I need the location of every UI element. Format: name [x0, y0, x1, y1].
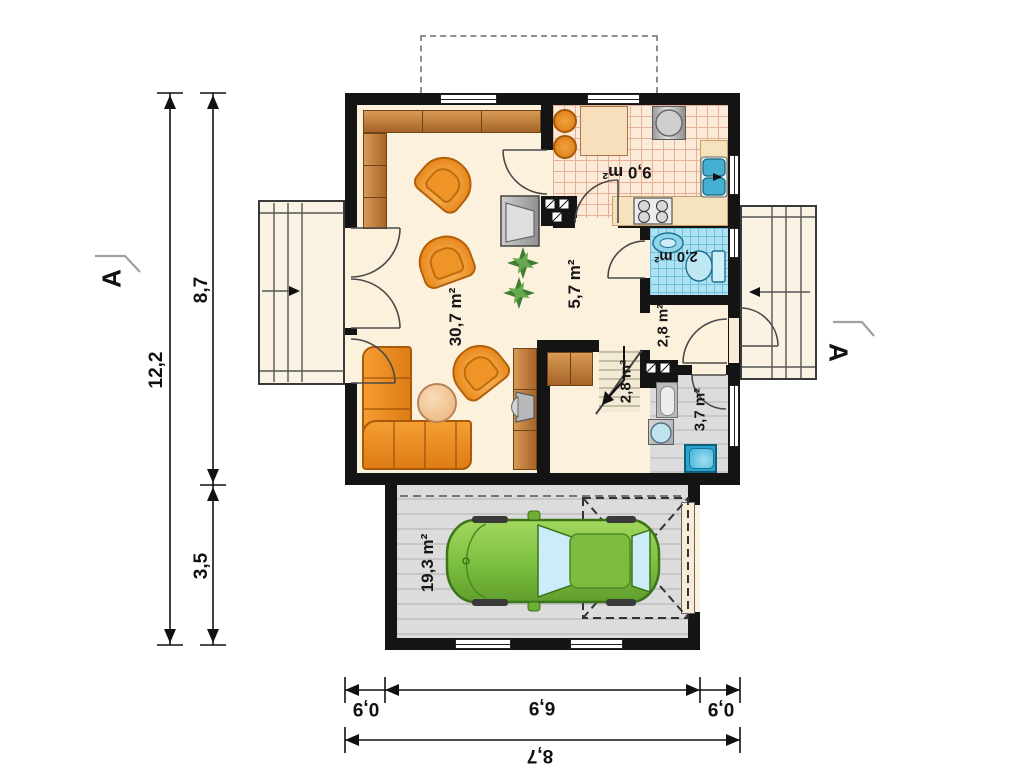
- dim-bottom-total: 8,7: [485, 744, 595, 766]
- entrance-door-opening: [729, 318, 739, 363]
- shelf-unit-top: [363, 110, 541, 133]
- garage-wall-bottom: [385, 638, 700, 650]
- label-kitchen-area: 9,0 m²: [572, 162, 682, 182]
- garage-wall-right-upper: [688, 473, 700, 505]
- garage-floor: [397, 485, 688, 638]
- window-garage-1: [455, 639, 511, 649]
- porch-right: [740, 205, 817, 380]
- wall-hall-kitchen-left: [553, 218, 575, 228]
- window-bath-right: [729, 385, 739, 447]
- floor-plan-canvas: 30,7 m² 5,7 m² 9,0 m² 2,0 m² 2,8 m² 2,8 …: [0, 0, 1024, 768]
- kitchen-stool-1: [553, 109, 577, 133]
- washing-machine: [648, 419, 674, 445]
- label-wc-area: 2,0 m²: [621, 248, 731, 265]
- terrace-left: [258, 200, 345, 385]
- label-bathroom-area: 3,7 m²: [692, 355, 709, 465]
- kitchen-door-opening: [541, 150, 553, 196]
- window-top-living: [440, 94, 497, 104]
- dim-bottom-right: 0,9: [666, 697, 776, 719]
- dim-bottom-left: 0,9: [311, 697, 421, 719]
- wall-bath-right: [726, 365, 740, 375]
- terrace-door-opening-2: [345, 335, 357, 383]
- section-marker-left: A: [97, 224, 128, 334]
- corner-sofa-horizontal: [362, 420, 472, 470]
- wall-vestibule-upper: [640, 305, 650, 313]
- dim-left-lower: 3,5: [191, 511, 213, 621]
- terrace-door-opening: [345, 228, 357, 328]
- bathtub-unit: [656, 382, 678, 418]
- dim-left-upper: 8,7: [191, 235, 213, 345]
- window-kitchen-right: [729, 155, 739, 195]
- window-top-kitchen: [587, 94, 640, 104]
- vestibule-opening: [640, 313, 650, 350]
- fridge: [652, 106, 686, 140]
- wall-kitchen-living-upper: [541, 105, 553, 150]
- wall-hall-closet: [537, 340, 599, 352]
- tv-cabinet: [513, 348, 537, 470]
- coffee-table: [417, 383, 457, 423]
- kitchen-table: [580, 106, 628, 156]
- garage-wall-left: [385, 473, 397, 650]
- shelf-unit-left: [363, 133, 387, 229]
- label-living-area: 30,7 m²: [446, 262, 466, 372]
- roof-outline-dashed: [420, 35, 658, 93]
- dim-left-total: 12,2: [146, 315, 168, 425]
- section-marker-right: A: [823, 298, 854, 408]
- label-vestibule-area: 2,8 m²: [655, 271, 672, 381]
- dim-bottom-center: 6,9: [487, 696, 597, 718]
- wall-bottom: [345, 473, 740, 485]
- garage-door: [681, 502, 695, 614]
- label-hall-area: 5,7 m²: [565, 229, 585, 339]
- kitchen-stool-2: [553, 135, 577, 159]
- kitchen-counter-bottom: [612, 196, 728, 226]
- hall-closet: [547, 352, 593, 386]
- label-garage-area: 19,3 m²: [418, 508, 438, 618]
- window-garage-2: [570, 639, 623, 649]
- label-stairs-area: 2,8 m²: [618, 327, 635, 437]
- wall-top: [345, 93, 740, 105]
